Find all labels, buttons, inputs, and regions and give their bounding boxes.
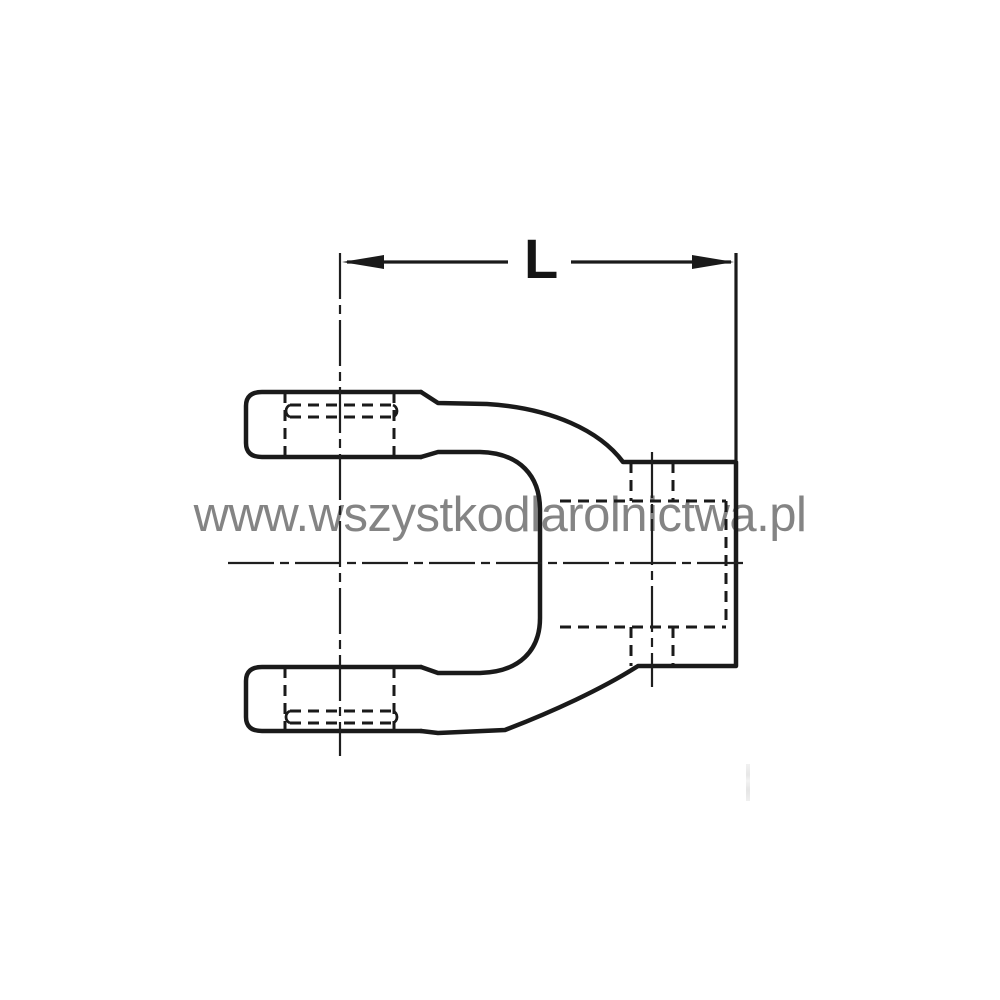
dimension-arrow-right bbox=[692, 255, 734, 269]
technical-drawing bbox=[0, 0, 1000, 1000]
bottom-ear-groove-left-cap bbox=[286, 711, 290, 723]
page-root: www.wszystkodlarolnictwa.pl bbox=[0, 0, 1000, 1000]
top-ear-groove-left-cap bbox=[286, 405, 290, 417]
hidden-lines bbox=[285, 392, 726, 731]
bottom-ear-groove-right-cap bbox=[393, 711, 397, 723]
dimension-label: L bbox=[524, 231, 558, 287]
centerlines bbox=[228, 253, 746, 756]
dimension-arrow-left bbox=[342, 255, 384, 269]
